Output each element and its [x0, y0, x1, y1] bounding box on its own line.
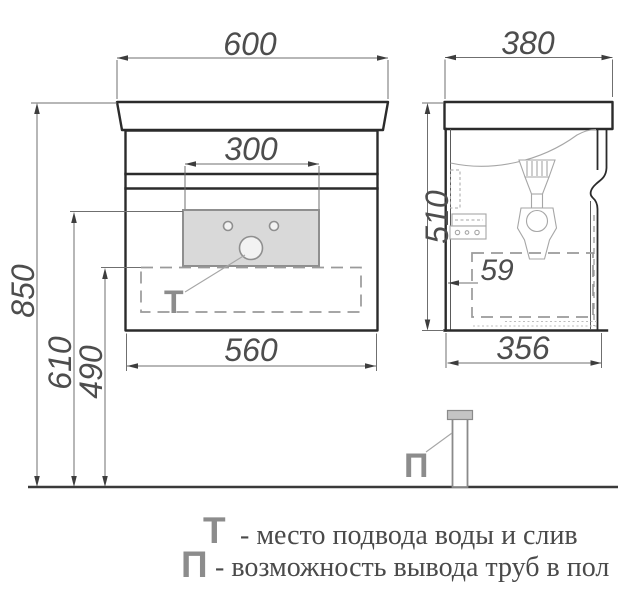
dimension-356: 356 — [446, 330, 602, 368]
legend-text-water: - место подвода воды и слив — [240, 520, 578, 551]
sink-front — [117, 102, 388, 130]
dim-510-label: 510 — [419, 190, 455, 244]
dimension-600: 600 — [117, 26, 388, 99]
dimension-510: 510 — [419, 103, 455, 331]
sink-side — [445, 102, 613, 129]
dimension-850: 850 — [5, 103, 117, 487]
side-view — [445, 102, 613, 331]
dim-560-label: 560 — [224, 332, 278, 368]
pipe-cap — [448, 411, 473, 420]
siphon-cone — [525, 177, 549, 194]
dimension-560: 560 — [127, 332, 377, 371]
pipe-body — [453, 419, 468, 487]
supply-hole-right — [270, 222, 279, 231]
dim-300-label: 300 — [224, 131, 278, 167]
dim-356-label: 356 — [496, 330, 550, 366]
wall-hook-profile — [591, 168, 607, 209]
dim-490-label: 490 — [73, 345, 109, 399]
legend: Т - место подвода воды и слив П - возмож… — [181, 510, 609, 585]
vanity-technical-drawing-page: Т — [0, 0, 644, 600]
legend-symbol-pipes: П — [181, 544, 208, 585]
dim-380-label: 380 — [501, 25, 555, 61]
siphon-trap-circle — [527, 211, 548, 232]
dim-59-label: 59 — [480, 254, 514, 287]
pipe-symbol-leader — [426, 433, 452, 452]
dimension-380: 380 — [445, 25, 613, 99]
water-symbol: Т — [164, 284, 184, 320]
siphon-pipe — [532, 194, 543, 208]
legend-text-pipes: - возможность вывода труб в пол — [215, 552, 609, 583]
pipe-symbol: П — [404, 447, 428, 485]
siphon — [518, 160, 557, 259]
vanity-technical-drawing: Т — [0, 0, 644, 600]
dim-850-label: 850 — [5, 264, 41, 318]
dim-600-label: 600 — [223, 26, 277, 62]
dimension-59: 59 — [448, 254, 514, 287]
floor-pipe: П — [404, 411, 473, 488]
supply-hole-left — [224, 222, 233, 231]
